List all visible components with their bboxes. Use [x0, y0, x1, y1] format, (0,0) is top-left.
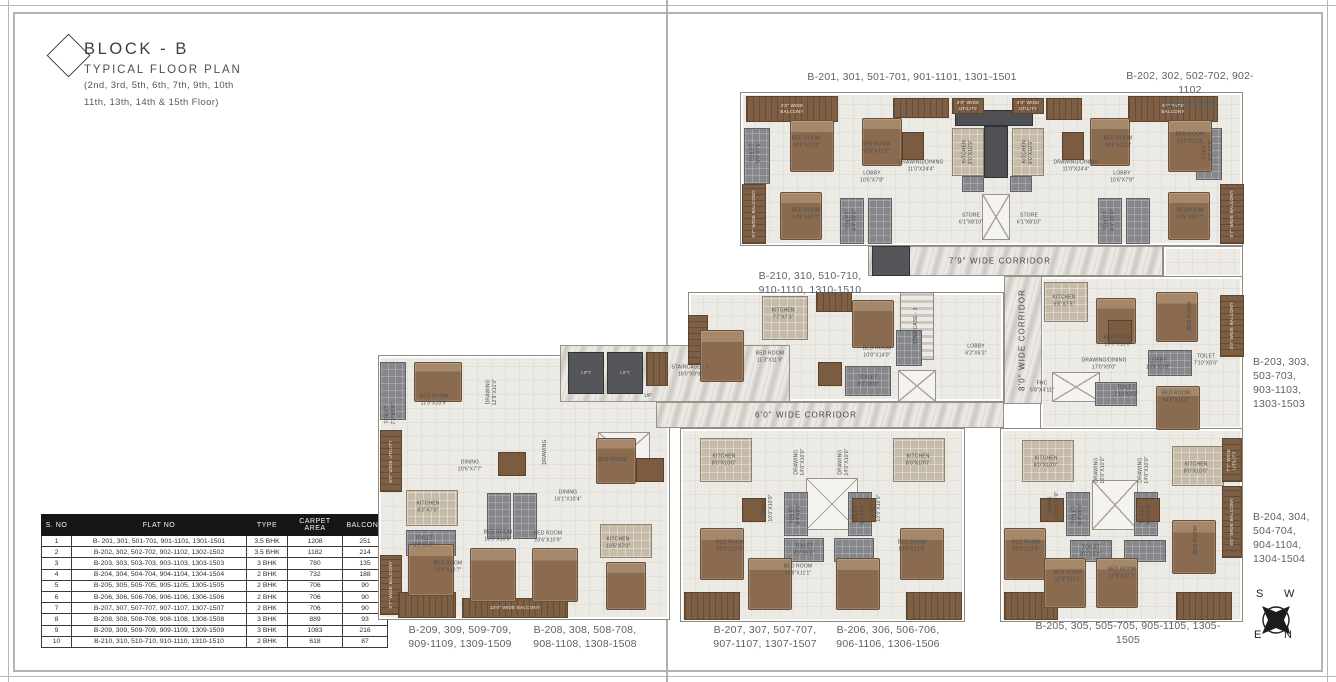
- room-label: DRAWING/DINING 11'0"X24'4": [899, 160, 944, 173]
- title-block: BLOCK - B TYPICAL FLOOR PLAN (2nd, 3rd, …: [84, 40, 242, 110]
- strip-label: 5'0" WIDE UTILITY: [388, 440, 394, 483]
- room-label: TOILET 8'0"X5'0": [413, 536, 434, 549]
- unit-flats-label: B-210, 310, 510-710, 910-1110, 1310-1510: [759, 269, 862, 297]
- dining-table: [498, 452, 526, 476]
- corridor-label: 6'0" WIDE CORRIDOR: [755, 411, 857, 420]
- balcony-strip: 5'5" WIDE BALCONY: [1222, 486, 1242, 558]
- room-label: KITCHEN 9'5"X7'5": [1053, 295, 1076, 308]
- page-border-top: [0, 5, 1336, 6]
- room-label: KITCHEN 8'0"X10'0": [1034, 456, 1058, 469]
- strip-label: 5'7" WIDE BALCONY: [1229, 190, 1235, 238]
- page-border-right: [1327, 0, 1328, 682]
- table-row: 5B-205, 305, 505-705, 905-1105, 1305-150…: [42, 580, 388, 591]
- room-label: TOILET 7'10"X4'0": [1114, 385, 1138, 398]
- room-label: TOILET 9'4"X5'0": [790, 503, 803, 524]
- table-cell: 2 BHK: [247, 569, 288, 580]
- lift: LIFT: [607, 352, 643, 394]
- room-label: TOILET 8'0"X5'0": [1080, 545, 1101, 558]
- balcony-strip: [1046, 98, 1082, 120]
- table-cell: 4: [42, 569, 72, 580]
- room-label: DRAWING/DINING 11'0"X24'4": [1054, 160, 1099, 173]
- balcony-strip: [646, 352, 668, 386]
- room-label: DINING 16'1"X10'4": [554, 490, 581, 503]
- room-label: BED ROOM 10'0"X14'0": [863, 346, 891, 359]
- strip-label: LIFT: [581, 370, 591, 376]
- strip-label: 5'5" WIDE BALCONY: [1229, 498, 1235, 546]
- balcony-strip: 4'0" WIDE BALCONY: [746, 96, 838, 122]
- unit-flats-label: B-206, 306, 506-706, 906-1106, 1306-1506: [836, 623, 939, 651]
- unit-flats-label: B-202, 302, 502-702, 902-1102 1302-1502: [1117, 69, 1263, 111]
- table-cell: 3.5 BHK: [247, 536, 288, 547]
- room-label: TOILET 9'4"X5'0": [854, 503, 867, 524]
- table-cell: 2 BHK: [247, 603, 288, 614]
- bed-furniture: [700, 528, 744, 580]
- dining-table: [636, 458, 664, 482]
- room-label: BED ROOM 14'5"X11'6": [1162, 391, 1190, 404]
- compass-rose: S W E N: [1244, 586, 1308, 650]
- room-label: TOILET 8'0"X5'0": [793, 544, 814, 557]
- shaft-void: [1052, 372, 1100, 402]
- service-core: [984, 126, 1008, 178]
- table-row: 8B-208, 308, 508-708, 908-1108, 1308-150…: [42, 614, 388, 625]
- table-cell: 1208: [288, 536, 343, 547]
- balcony-strip: 5'7" WIDE BALCONY: [1220, 184, 1244, 244]
- table-cell: 5: [42, 580, 72, 591]
- unit-floor: [1163, 246, 1243, 278]
- table-cell: 9: [42, 625, 72, 636]
- balcony-strip: 5'0" WIDE UTILITY: [380, 430, 402, 492]
- unit-flats-label: B-204, 304, 504-704, 904-1104, 1304-1504: [1253, 510, 1310, 566]
- unit-flats-label: B-203, 303, 503-703, 903-1103, 1303-1503: [1253, 355, 1310, 411]
- table-cell: 2 BHK: [247, 636, 288, 647]
- table-cell: 3 BHK: [247, 614, 288, 625]
- floors-line-1: (2nd, 3rd, 5th, 6th, 7th, 9th, 10th: [84, 80, 242, 93]
- room-label: TOILET 8'2"X5'0": [857, 375, 878, 388]
- strip-label: 10'0" WIDE BALCONY: [490, 605, 540, 611]
- balcony-strip: 5'7" WIDE BALCONY: [742, 184, 766, 244]
- room-label: KITCHEN 8'0"X10'0": [712, 454, 736, 467]
- bed-furniture: [836, 558, 880, 610]
- table-cell: 7: [42, 603, 72, 614]
- table-cell: 2 BHK: [247, 580, 288, 591]
- table-row: 4B-204, 304, 504-704, 904-1104, 1304-150…: [42, 569, 388, 580]
- room-label: DRAWING 14'0"X10'0": [1138, 456, 1151, 483]
- room-label: BED ROOM 10'0"X10'0": [1104, 335, 1132, 348]
- room-label: TOILET 7'10"X5'0": [1194, 354, 1218, 367]
- room-label: DRAWING 14'0"X10'0": [794, 448, 807, 475]
- room-label: STORE 6'1"X8'10": [1017, 213, 1041, 226]
- room-label: DRAWING 14'0"X10'0": [838, 448, 851, 475]
- table-cell: 87: [343, 636, 388, 647]
- unit-flats-label: B-208, 308, 508-708, 908-1108, 1308-1508: [533, 623, 636, 651]
- table-cell: 2: [42, 547, 72, 558]
- room-label: LOBBY 13'4"X3'8": [1146, 358, 1170, 371]
- room-label: TOILET 8'4"X5'0": [1104, 209, 1117, 230]
- dining-table: [902, 132, 924, 160]
- balcony-strip: 4'0" WIDE UTILITY: [1012, 98, 1044, 114]
- table-cell: 3 BHK: [247, 625, 288, 636]
- table-cell: 706: [288, 603, 343, 614]
- balcony-strip: [906, 592, 962, 620]
- balcony-strip: 4'0" WIDE UTILITY: [952, 98, 984, 114]
- column-header: FLAT NO: [72, 515, 247, 536]
- room-label: DRAWING 16'0"X10'0": [1094, 456, 1107, 483]
- room-label: UP: [644, 393, 651, 400]
- page-border-bottom: [0, 676, 1336, 677]
- room-label: BED ROOM 12'9"X10'7": [434, 561, 462, 574]
- room-label: DINING 10'0"X10'0": [762, 494, 775, 521]
- table-cell: 618: [288, 636, 343, 647]
- table-row: 6B-206, 306, 506-706, 906-1106, 1306-150…: [42, 591, 388, 602]
- table-cell: 1083: [288, 625, 343, 636]
- room-label: DINING 10'0"X10'0": [870, 494, 883, 521]
- table-cell: 889: [288, 614, 343, 625]
- table-cell: B-205, 305, 505-705, 905-1105, 1305-1505: [72, 580, 247, 591]
- table-cell: B-206, 306, 506-706, 906-1106, 1306-1506: [72, 591, 247, 602]
- room-label: BED ROOM: [598, 457, 626, 464]
- plan-subtitle: TYPICAL FLOOR PLAN: [84, 64, 242, 76]
- table-cell: 706: [288, 580, 343, 591]
- room-label: KITCHEN 8'0"X10'0": [906, 454, 930, 467]
- room-label: BED ROOM 10'5"X11'0": [862, 142, 890, 155]
- table-cell: B-203, 303, 503-703, 903-1103, 1303-1503: [72, 558, 247, 569]
- table-cell: 2 BHK: [247, 591, 288, 602]
- room-label: DINING 10'0"X10'0": [1048, 491, 1061, 518]
- table-row: 10B-210, 310, 510-710, 910-1110, 1310-15…: [42, 636, 388, 647]
- room-label: DRAWING/DINING 17'0"X9'0": [1082, 358, 1127, 371]
- strip-label: 4'0" WIDE UTILITY: [1017, 100, 1040, 111]
- unit-flats-label: B-207, 307, 507-707, 907-1107, 1307-1507: [713, 623, 816, 651]
- table-cell: 732: [288, 569, 343, 580]
- floors-line-2: 11th, 13th, 14th & 15th Floor): [84, 97, 242, 110]
- brochure-page: BLOCK - B TYPICAL FLOOR PLAN (2nd, 3rd, …: [0, 0, 1336, 682]
- toilet-room: [1010, 176, 1032, 192]
- room-label: LOBBY 10'5"X7'8": [860, 171, 884, 184]
- strip-label: 4'0" WIDE BALCONY: [1229, 302, 1235, 350]
- table-cell: 216: [343, 625, 388, 636]
- room-label: KITCHEN 7'7"X7'3": [772, 308, 795, 321]
- room-label: BED ROOM 10'5"X11'0": [1104, 136, 1132, 149]
- room-label: KITCHEN 8'0"X10'0": [1184, 462, 1208, 475]
- room-label: KITCHEN 9'0"X10'9": [1022, 140, 1035, 164]
- room-label: BED ROOM 12'9"X11'1": [784, 564, 812, 577]
- table-cell: 10: [42, 636, 72, 647]
- strip-label: 4'0" WIDE UTILITY: [957, 100, 980, 111]
- bed-furniture: [470, 548, 516, 602]
- room-label: BED ROOM 13'2"X11'3": [1176, 132, 1204, 145]
- balcony-strip: [893, 98, 949, 118]
- bed-furniture: [606, 562, 646, 610]
- room-label: BEDROOM 14'5"X10'7": [1176, 208, 1203, 221]
- room-label: TOILET 9'4"X5'0": [1140, 503, 1153, 524]
- table-row: 7B-207, 307, 507-707, 907-1107, 1307-150…: [42, 603, 388, 614]
- room-label: BED ROOM 12'9"X11'7": [1108, 567, 1136, 580]
- strip-label: 7'7" WIDE UTILITY: [1226, 449, 1237, 472]
- bed-furniture: [532, 548, 578, 602]
- room-label: BED ROOM 10'0"X12'9": [1012, 540, 1040, 553]
- table-cell: B-208, 308, 508-708, 908-1108, 1308-1508: [72, 614, 247, 625]
- table-cell: 3: [42, 558, 72, 569]
- table-row: 9B-209, 309, 509-709, 909-1109, 1309-150…: [42, 625, 388, 636]
- dining-table: [1062, 132, 1084, 160]
- room-label: KITCHEN 8'2"X7'0": [417, 501, 440, 514]
- room-label: STORE 6'1"X8'10": [959, 213, 983, 226]
- room-label: KITCHEN 9'0"X10'9": [962, 140, 975, 164]
- table-row: 2B-202, 302, 502-702, 902-1102, 1302-150…: [42, 547, 388, 558]
- room-label: TOILET 8'4"X5'0": [846, 209, 859, 230]
- bed-furniture: [1044, 558, 1086, 608]
- strip-label: LIFT: [620, 370, 630, 376]
- table-cell: 780: [288, 558, 343, 569]
- strip-label: 5'7" WIDE BALCONY: [388, 561, 394, 609]
- room-label: BED ROOM 11'0"X10'9": [420, 394, 448, 407]
- corridor-label: 7'9" WIDE CORRIDOR: [949, 257, 1051, 266]
- shaft-void: [1092, 480, 1138, 530]
- flats-table-header: S. NOFLAT NOTYPECARPET AREABALCONY: [42, 515, 388, 536]
- table-row: 3B-203, 303, 503-703, 903-1103, 1303-150…: [42, 558, 388, 569]
- compass-letter-south: S: [1256, 588, 1263, 600]
- room-label: TOILET 9'4"X5'0": [1072, 503, 1085, 524]
- dining-table: [818, 362, 842, 386]
- room-label: STAIRCASE - 1 18'0"X9'9": [671, 365, 708, 378]
- column-header: CARPET AREA: [288, 515, 343, 536]
- table-row: 1B- 201, 301, 501-701, 901-1101, 1301-15…: [42, 536, 388, 547]
- room-label: BED ROOM: [1193, 526, 1200, 554]
- room-label: BED ROOM 10'0"X10'0": [484, 530, 512, 543]
- room-label: LOBBY 6'2"X6'3": [965, 344, 986, 357]
- unit-flats-label: B-205, 305, 505-705, 905-1105, 1305-1505: [1024, 619, 1232, 647]
- table-cell: B-202, 302, 502-702, 902-1102, 1302-1502: [72, 547, 247, 558]
- bed-furniture: [852, 300, 894, 348]
- balcony-strip: 4'0" WIDE BALCONY: [1220, 295, 1244, 357]
- column-header: TYPE: [247, 515, 288, 536]
- shaft-void: [982, 194, 1010, 240]
- room-label: BED ROOM 10'6"X10'9": [534, 531, 562, 544]
- bed-furniture: [1096, 558, 1138, 608]
- table-cell: 3 BHK: [247, 558, 288, 569]
- balcony-strip: [684, 592, 740, 620]
- column-header: S. NO: [42, 515, 72, 536]
- room-label: BED ROOM 10'0"X12'9": [716, 540, 744, 553]
- lift: LIFT: [568, 352, 604, 394]
- flats-table: S. NOFLAT NOTYPECARPET AREABALCONY 1B- 2…: [41, 514, 388, 648]
- room-label: BED ROOM 12'9"X11'1": [1054, 570, 1082, 583]
- table-cell: B-209, 309, 509-709, 909-1109, 1309-1509: [72, 625, 247, 636]
- room-label: BED ROOM 14'5"X10'7": [792, 208, 820, 221]
- strip-label: 4'0" WIDE BALCONY: [780, 103, 803, 114]
- balcony-strip: 7'7" WIDE UTILITY: [1222, 438, 1242, 482]
- room-label: BED ROOM 11'3"X11'9": [756, 351, 784, 364]
- compass-letter-north: N: [1284, 629, 1292, 641]
- room-label: STAIRCASE - 2: [913, 307, 920, 344]
- unit-flats-label: B-209, 309, 509-709, 909-1109, 1309-1509: [408, 623, 511, 651]
- block-title: BLOCK - B: [84, 40, 242, 59]
- bed-furniture: [900, 528, 944, 580]
- table-cell: 706: [288, 591, 343, 602]
- room-label: DRAWING 12'9"X11'0": [486, 379, 499, 406]
- toilet-room: [962, 176, 984, 192]
- table-cell: 8: [42, 614, 72, 625]
- compass-letter-west: W: [1284, 588, 1294, 600]
- room-label: DINING 20'6"X7'7": [458, 460, 482, 473]
- room-label: FHC 5'8"X4'11": [1030, 381, 1054, 394]
- bed-furniture: [1004, 528, 1046, 580]
- compass-letter-east: E: [1254, 629, 1261, 641]
- table-cell: 6: [42, 591, 72, 602]
- room-label: LOBBY 10'5"X7'8": [1110, 171, 1134, 184]
- room-label: BED ROOM 13'0"X11'9": [792, 136, 820, 149]
- room-label: TOILET 5'0"X7'5": [750, 141, 763, 162]
- toilet-room: [868, 198, 892, 244]
- table-cell: B- 201, 301, 501-701, 901-1101, 1301-150…: [72, 536, 247, 547]
- lift: [872, 246, 910, 276]
- corridor-label: 8'0" WIDE CORRIDOR: [1018, 289, 1027, 391]
- room-label: KITCHEN 10'5"X7'0": [606, 537, 630, 550]
- unit-flats-label: B-201, 301, 501-701, 901-1101, 1301-1501: [807, 70, 1016, 84]
- table-cell: 3.5 BHK: [247, 547, 288, 558]
- shaft-void: [898, 370, 936, 402]
- table-cell: 1182: [288, 547, 343, 558]
- table-cell: 1: [42, 536, 72, 547]
- room-label: BED ROOM 10'0"X12'9": [898, 540, 926, 553]
- room-label: TOILET 7'2"X5'0": [385, 403, 398, 424]
- toilet-room: [1126, 198, 1150, 244]
- table-cell: B-210, 310, 510-710, 910-1110, 1310-1510: [72, 636, 247, 647]
- strip-label: 5'7" WIDE BALCONY: [751, 190, 757, 238]
- page-border-left: [8, 0, 9, 682]
- table-cell: B-207, 307, 507-707, 907-1107, 1307-1507: [72, 603, 247, 614]
- table-cell: B-204, 304, 504-704, 904-1104, 1304-1504: [72, 569, 247, 580]
- balcony-strip: [1176, 592, 1232, 620]
- room-label: BED ROOM: [1187, 302, 1194, 330]
- room-label: DRAWING: [542, 439, 549, 464]
